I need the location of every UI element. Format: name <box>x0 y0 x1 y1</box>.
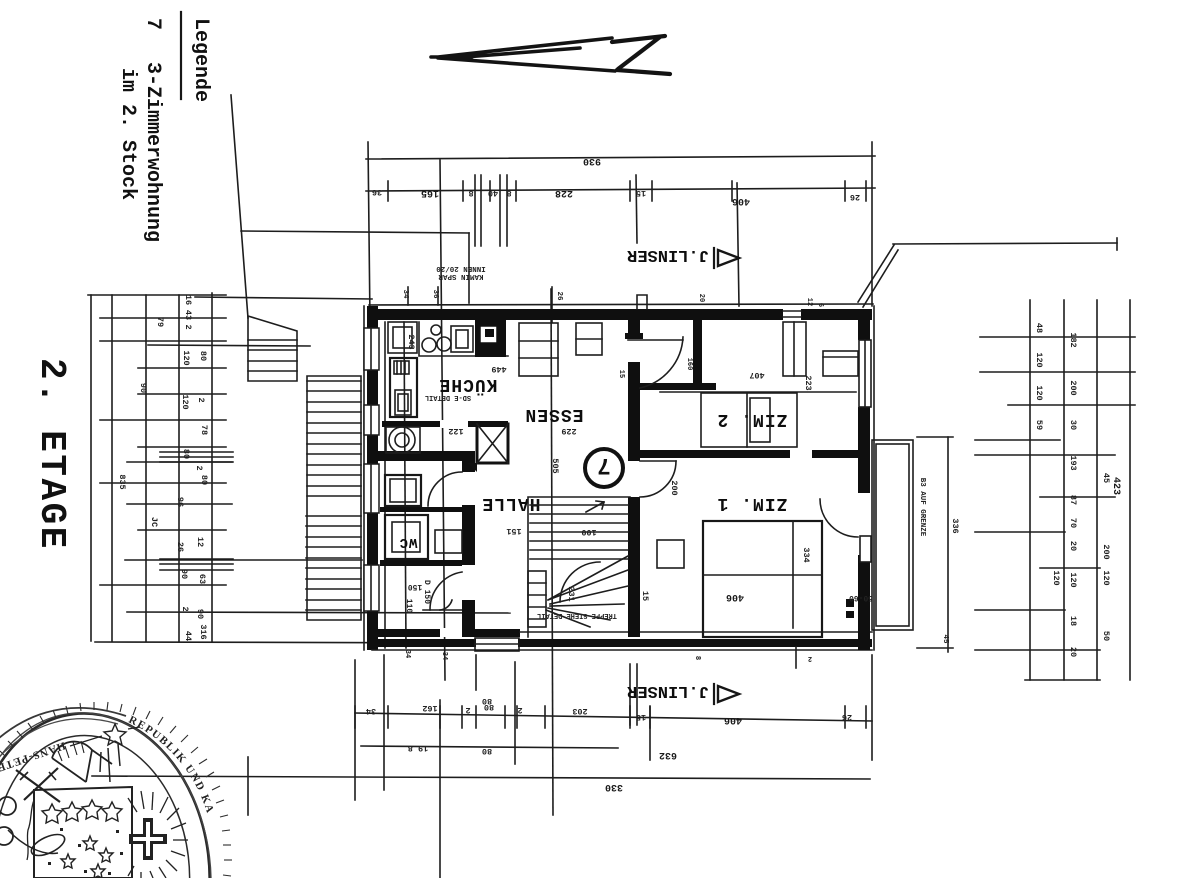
svg-text:ZIM. 2: ZIM. 2 <box>717 409 788 429</box>
svg-text:330: 330 <box>605 781 623 792</box>
svg-text:2: 2 <box>517 705 522 715</box>
svg-text:165: 165 <box>421 187 439 198</box>
svg-text:96: 96 <box>175 497 185 507</box>
svg-text:406: 406 <box>724 714 742 725</box>
svg-text:26: 26 <box>175 542 185 552</box>
svg-text:20: 20 <box>697 294 705 302</box>
svg-text:2: 2 <box>180 606 190 611</box>
svg-text:12: 12 <box>805 298 813 306</box>
svg-text:80: 80 <box>181 449 191 459</box>
svg-text:34: 34 <box>366 706 376 716</box>
svg-text:15: 15 <box>636 188 646 198</box>
svg-text:120: 120 <box>180 394 190 409</box>
svg-text:30: 30 <box>1068 420 1078 430</box>
svg-text:632: 632 <box>659 749 677 760</box>
svg-text:423: 423 <box>1110 477 1121 495</box>
svg-text:120: 120 <box>1101 570 1111 585</box>
svg-text:44: 44 <box>183 631 193 641</box>
svg-text:43: 43 <box>183 310 193 320</box>
svg-text:2. ETAGE: 2. ETAGE <box>31 358 72 551</box>
svg-text:7: 7 <box>597 452 611 478</box>
svg-text:45: 45 <box>941 634 949 644</box>
svg-text:120: 120 <box>1051 570 1061 585</box>
svg-text:120: 120 <box>1068 572 1078 587</box>
svg-text:JC: JC <box>149 517 159 527</box>
svg-text:2: 2 <box>808 654 812 662</box>
svg-text:6: 6 <box>816 303 824 307</box>
svg-text:200: 200 <box>1101 544 1111 559</box>
svg-text:20: 20 <box>1068 541 1078 551</box>
svg-text:162: 162 <box>422 703 437 713</box>
svg-text:449: 449 <box>491 364 506 374</box>
svg-text:336: 336 <box>950 518 960 533</box>
svg-text:203: 203 <box>572 706 587 716</box>
svg-text:45: 45 <box>1101 473 1111 483</box>
svg-text:78: 78 <box>199 425 209 435</box>
svg-text:B3 AUF GRENZE: B3 AUF GRENZE <box>918 478 926 537</box>
svg-text:26: 26 <box>555 291 563 301</box>
svg-text:90: 90 <box>138 383 148 393</box>
svg-text:8: 8 <box>468 188 473 198</box>
svg-text:WC: WC <box>399 534 418 550</box>
svg-text:34: 34 <box>440 652 448 660</box>
svg-text:36: 36 <box>372 187 382 197</box>
svg-text:2: 2 <box>465 705 470 715</box>
svg-text:34: 34 <box>401 289 409 299</box>
svg-text:505: 505 <box>550 458 560 473</box>
svg-text:80: 80 <box>484 702 494 712</box>
svg-text:D 150: D 150 <box>422 580 431 604</box>
svg-text:19 8: 19 8 <box>408 743 428 753</box>
svg-text:15: 15 <box>640 591 650 601</box>
svg-text:160: 160 <box>685 358 693 371</box>
svg-text:40: 40 <box>488 188 498 198</box>
svg-text:193: 193 <box>1068 455 1078 470</box>
svg-text:26: 26 <box>850 192 860 202</box>
svg-text:120: 120 <box>1034 352 1044 367</box>
svg-text:50-60: 50-60 <box>849 593 873 602</box>
svg-text:87: 87 <box>1068 495 1078 505</box>
svg-text:80: 80 <box>198 351 208 361</box>
svg-text:406: 406 <box>732 195 750 206</box>
svg-text:36: 36 <box>431 289 439 299</box>
svg-text:80: 80 <box>199 475 209 485</box>
svg-text:20: 20 <box>1068 647 1078 657</box>
svg-text:334: 334 <box>801 547 811 562</box>
svg-text:ESSEN: ESSEN <box>524 404 583 424</box>
svg-text:INNEN 20/20: INNEN 20/20 <box>436 264 486 272</box>
svg-text:26: 26 <box>842 712 852 722</box>
svg-text:TREPPE SIEHE DETAIL: TREPPE SIEHE DETAIL <box>537 611 617 619</box>
svg-text:229: 229 <box>561 426 576 436</box>
svg-text:151: 151 <box>506 526 521 536</box>
svg-text:406: 406 <box>726 591 744 602</box>
svg-text:231: 231 <box>566 586 576 601</box>
svg-text:79: 79 <box>155 317 165 327</box>
svg-text:228: 228 <box>555 187 573 198</box>
svg-text:150: 150 <box>408 582 423 591</box>
svg-text:SD-E DETAIL: SD-E DETAIL <box>425 393 471 401</box>
svg-text:15: 15 <box>617 370 625 378</box>
svg-text:7: 7 <box>141 18 164 30</box>
svg-text:KAMIN SPAR: KAMIN SPAR <box>438 272 484 280</box>
svg-text:110: 110 <box>404 599 413 614</box>
svg-text:HALLE: HALLE <box>481 493 540 513</box>
svg-text:90: 90 <box>179 569 189 579</box>
svg-text:im 2. Stock: im 2. Stock <box>116 68 139 200</box>
svg-text:2: 2 <box>196 397 206 402</box>
svg-text:J.LINSER: J.LINSER <box>626 681 708 700</box>
svg-text:200: 200 <box>1068 380 1078 395</box>
svg-text:18: 18 <box>1068 616 1078 626</box>
svg-text:122: 122 <box>448 426 463 436</box>
svg-text:48: 48 <box>1034 323 1044 333</box>
svg-text:3-Zimmerwohnung: 3-Zimmerwohnung <box>141 62 164 242</box>
svg-text:16: 16 <box>183 295 193 305</box>
svg-text:90: 90 <box>195 609 205 619</box>
svg-text:2: 2 <box>194 465 204 470</box>
svg-text:70: 70 <box>1068 518 1078 528</box>
svg-text:407: 407 <box>749 370 764 380</box>
svg-text:120: 120 <box>1034 385 1044 400</box>
svg-text:Legende: Legende <box>189 18 212 102</box>
svg-text:12: 12 <box>195 537 205 547</box>
svg-text:8: 8 <box>693 656 701 660</box>
svg-text:59: 59 <box>1034 420 1044 430</box>
svg-text:50: 50 <box>1101 631 1111 641</box>
svg-text:63: 63 <box>197 574 207 584</box>
svg-text:2: 2 <box>183 324 193 329</box>
svg-text:34: 34 <box>403 650 411 658</box>
svg-text:223: 223 <box>803 375 813 390</box>
svg-text:80: 80 <box>482 746 492 756</box>
svg-text:KÜCHE: KÜCHE <box>438 374 497 395</box>
svg-text:J.LINSER: J.LINSER <box>626 245 708 264</box>
svg-text:ZIM. 1: ZIM. 1 <box>717 493 788 513</box>
svg-text:120: 120 <box>181 350 191 365</box>
svg-text:182: 182 <box>1068 332 1078 347</box>
svg-text:930: 930 <box>583 155 601 166</box>
svg-text:200: 200 <box>669 480 679 495</box>
svg-text:100: 100 <box>581 527 596 537</box>
svg-text:835: 835 <box>117 474 127 489</box>
svg-text:316: 316 <box>198 624 208 639</box>
